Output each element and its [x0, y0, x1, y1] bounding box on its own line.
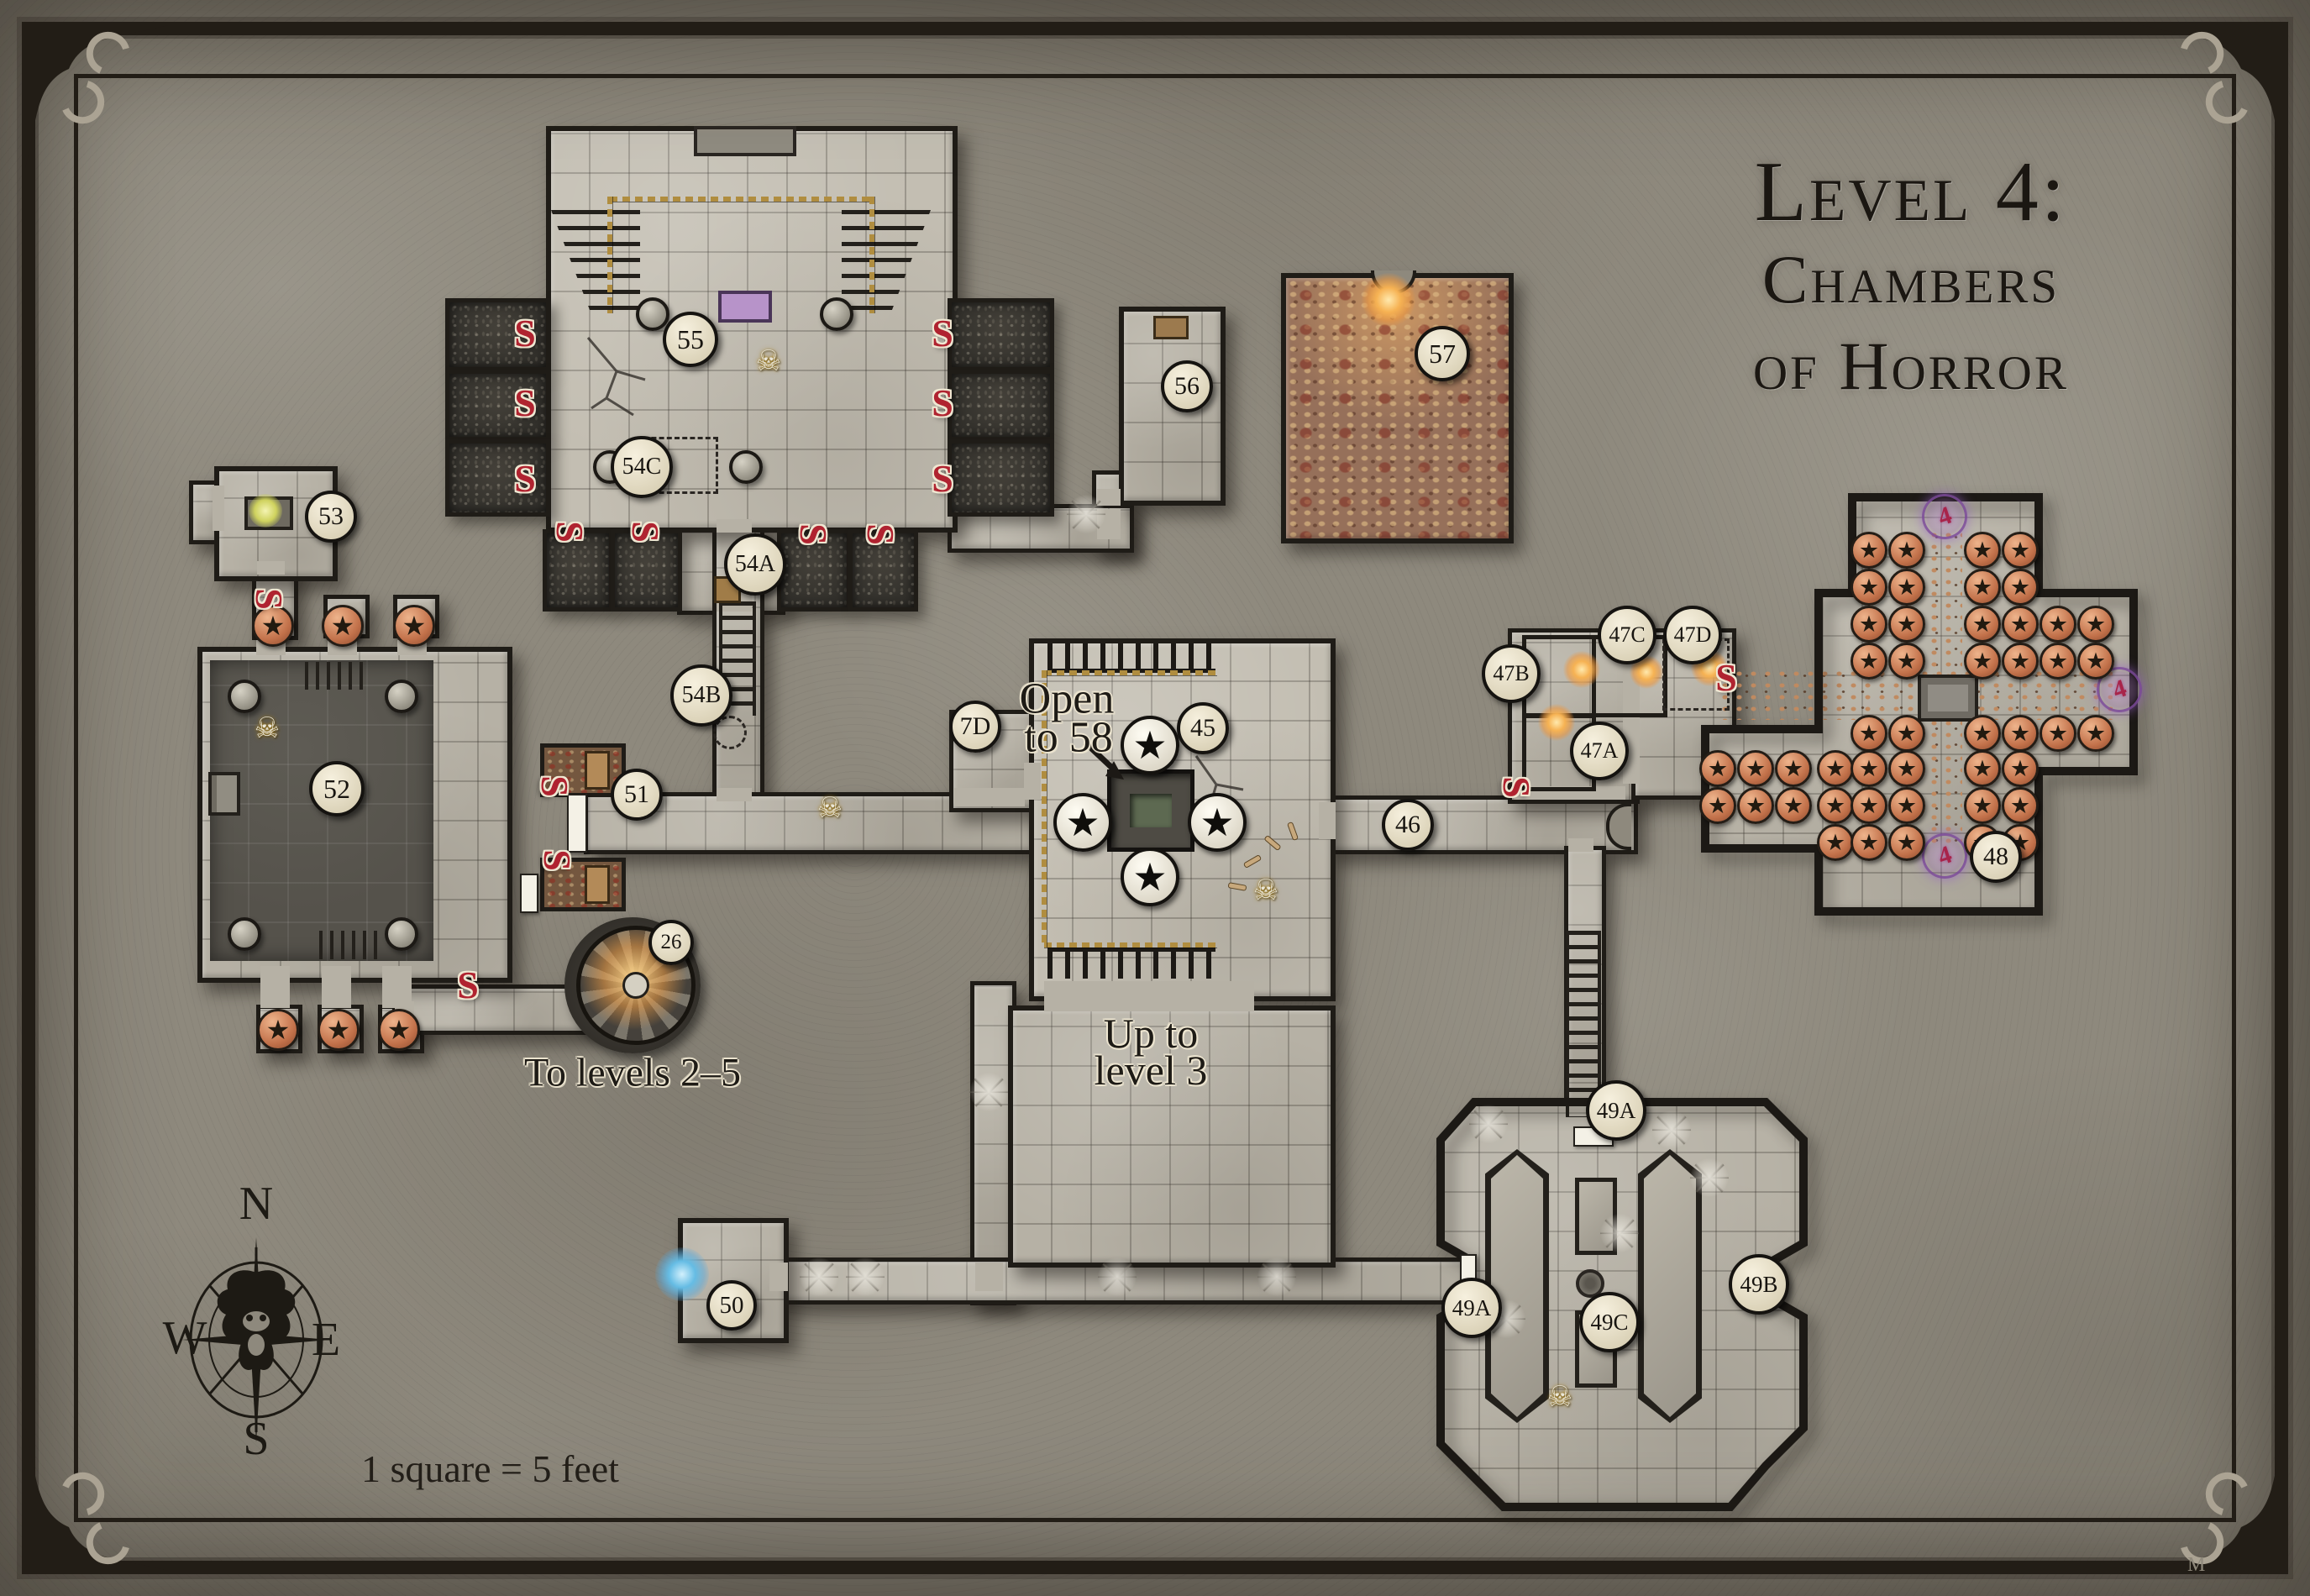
star-icon: ★ [1783, 795, 1803, 817]
room-label: 47B [1482, 644, 1541, 703]
room-label: 52 [309, 761, 365, 816]
star-icon: ★ [1859, 832, 1879, 854]
star-icon: ★ [331, 612, 355, 639]
secret-door-marker: S [514, 459, 536, 498]
star-icon: ★ [1897, 576, 1917, 599]
room-label: 47D [1663, 606, 1722, 664]
star-icon: ★ [1897, 832, 1917, 854]
star-medallion: ★ [1888, 532, 1925, 569]
star-icon: ★ [1972, 795, 1992, 817]
room-label: 45 [1177, 702, 1229, 754]
spider-web-icon [1690, 1158, 1729, 1197]
annotation-up-to-level3b: level 3 [1095, 1046, 1208, 1095]
room-label-text: 49C [1590, 1310, 1628, 1336]
star-medallion: ★ [1851, 643, 1887, 680]
star-medallion: ★ [1964, 569, 2001, 606]
dungeon-map: 5554C54A54B535251267D454647B47C47D47A484… [0, 0, 2310, 1596]
room-label-text: 55 [677, 324, 704, 355]
star-medallion: ★ [1964, 606, 2001, 643]
room-label: 54C [611, 436, 673, 498]
bone-debris [1243, 854, 1263, 869]
torch-flame-icon [1563, 651, 1600, 688]
skull-icon: ☠ [1547, 1380, 1572, 1414]
star-icon: ★ [1972, 576, 1992, 599]
room-label: 49A [1586, 1080, 1646, 1141]
room-label-text: 54A [735, 551, 775, 578]
star-medallion: ★ [1888, 787, 1925, 824]
spider-web-icon [846, 1257, 885, 1296]
skull-icon: ☠ [255, 711, 280, 745]
room-label-text: 49A [1452, 1295, 1492, 1321]
star-medallion: ★ [2002, 532, 2039, 569]
secret-door-marker: S [538, 849, 576, 871]
annotation-to-levels: To levels 2–5 [524, 1050, 741, 1096]
star-icon: ★ [1859, 613, 1879, 636]
star-icon: ★ [1708, 758, 1728, 780]
room-label-text: 51 [624, 780, 649, 809]
room-label-text: 54B [682, 682, 722, 709]
star-medallion: ★ [1851, 532, 1887, 569]
star-medallion: ★ [1888, 715, 1925, 752]
secret-door-marker: S [626, 521, 664, 543]
star-medallion: ★ [252, 605, 294, 647]
secret-door-marker: S [932, 384, 953, 423]
room-label: 54A [724, 533, 786, 596]
room-label-text: 45 [1190, 714, 1215, 743]
glowing-orb-icon [249, 494, 282, 528]
room-label-text: 48 [1983, 843, 2008, 871]
star-icon: ★ [1825, 795, 1845, 817]
star-icon: ★ [1859, 539, 1879, 562]
star-icon: ★ [1825, 758, 1845, 780]
spider-web-icon [800, 1257, 838, 1296]
star-icon: ★ [2010, 758, 2030, 780]
star-medallion: ★ [1888, 643, 1925, 680]
room-label: 51 [611, 769, 663, 821]
star-icon: ★ [1859, 758, 1879, 780]
star-icon: ★ [261, 612, 286, 639]
room-label-text: 49A [1597, 1098, 1636, 1124]
star-medallion: ★ [1817, 787, 1854, 824]
room-label: 57 [1415, 326, 1470, 381]
star-icon: ★ [2048, 650, 2068, 673]
rune-glyph: 4 [2109, 675, 2130, 706]
star-icon: ★ [2010, 576, 2030, 599]
room-label-text: 47C [1609, 622, 1645, 648]
room-label: 46 [1382, 799, 1434, 851]
room-label: 49C [1579, 1292, 1640, 1352]
spider-web-icon [1098, 1257, 1137, 1296]
star-medallion: ★ [322, 605, 364, 647]
room-label-text: 49B [1740, 1272, 1777, 1298]
ward-rune-icon: 4 [1922, 494, 1967, 539]
secret-door-marker: S [932, 314, 953, 353]
secret-door-marker: S [457, 966, 479, 1005]
skull-icon: ☠ [817, 791, 843, 825]
compass-rose: N W E S [143, 1172, 378, 1466]
door [567, 794, 587, 853]
scale-note: 1 square = 5 feet [361, 1446, 619, 1491]
room-label: 26 [648, 920, 694, 965]
star-medallion: ★ [1775, 787, 1812, 824]
star-medallion: ★ [2040, 715, 2076, 752]
star-medallion: ★ [393, 605, 435, 647]
star-icon: ★ [2010, 722, 2030, 745]
secret-door-marker: S [535, 775, 574, 797]
room-label-text: 47B [1493, 661, 1529, 686]
magic-glow-icon [655, 1247, 709, 1301]
star-medallion: ★ [2002, 715, 2039, 752]
spider-web-icon [969, 1073, 1008, 1111]
star-icon: ★ [1972, 539, 1992, 562]
star-icon: ★ [1783, 758, 1803, 780]
room-label: 56 [1161, 360, 1213, 412]
room-label-text: 56 [1174, 372, 1200, 401]
star-icon: ★ [2010, 650, 2030, 673]
star-medallion: ★ [1964, 643, 2001, 680]
star-medallion: ★ [2077, 643, 2114, 680]
secret-door-marker: S [514, 384, 536, 423]
bone-debris [1263, 835, 1281, 852]
star-medallion: ★ [1851, 824, 1887, 861]
star-icon: ★ [2010, 795, 2030, 817]
star-icon: ★ [1200, 803, 1234, 842]
room-label-text: 50 [720, 1292, 744, 1320]
star-medallion: ★ [1737, 787, 1774, 824]
star-medallion: ★ [1851, 750, 1887, 787]
star-icon: ★ [2086, 650, 2106, 673]
star-medallion: ★ [2077, 606, 2114, 643]
ward-rune-icon: 4 [1922, 833, 1967, 879]
star-medallion: ★ [378, 1009, 420, 1051]
title-line-3: of Horror [1659, 323, 2163, 410]
star-icon: ★ [327, 1016, 351, 1043]
secret-door-marker: S [794, 523, 832, 545]
star-medallion: ★ [1888, 569, 1925, 606]
star-icon: ★ [1897, 795, 1917, 817]
room-label: 50 [706, 1280, 757, 1331]
star-icon: ★ [2086, 613, 2106, 636]
star-medallion: ★ [1888, 606, 1925, 643]
room-label: 49A [1441, 1278, 1502, 1338]
pit-star-medallion: ★ [1121, 848, 1179, 906]
star-medallion: ★ [2002, 569, 2039, 606]
star-medallion: ★ [2002, 643, 2039, 680]
star-icon: ★ [266, 1016, 291, 1043]
room-label: 49B [1729, 1254, 1789, 1315]
door [520, 874, 538, 913]
star-medallion: ★ [1851, 715, 1887, 752]
star-medallion: ★ [1699, 787, 1736, 824]
skull-icon: ☠ [756, 344, 781, 378]
bone-debris [1287, 822, 1299, 841]
star-medallion: ★ [2002, 606, 2039, 643]
room-label: 55 [663, 312, 718, 367]
secret-door-marker: S [1715, 659, 1737, 697]
star-medallion: ★ [1888, 750, 1925, 787]
star-medallion: ★ [318, 1009, 360, 1051]
star-icon: ★ [1859, 722, 1879, 745]
star-icon: ★ [1065, 803, 1100, 842]
secret-door-marker: S [1497, 776, 1536, 798]
star-medallion: ★ [1699, 750, 1736, 787]
secret-door-marker: S [550, 521, 589, 543]
star-icon: ★ [1825, 832, 1845, 854]
spider-web-icon [1469, 1105, 1508, 1143]
artist-signature: M [2187, 1554, 2205, 1577]
star-icon: ★ [1859, 650, 1879, 673]
map-title: Level 4: Chambers of Horror [1659, 147, 2163, 409]
secret-door-marker: S [514, 314, 536, 353]
skull-icon: ☠ [1253, 874, 1278, 907]
star-icon: ★ [2048, 613, 2068, 636]
annotation-open-58b: to 58 [1024, 713, 1112, 763]
star-icon: ★ [1708, 795, 1728, 817]
star-icon: ★ [1746, 795, 1766, 817]
star-icon: ★ [1897, 539, 1917, 562]
room-label: 47C [1598, 606, 1656, 664]
star-icon: ★ [1972, 650, 1992, 673]
spider-web-icon [1067, 495, 1105, 533]
star-icon: ★ [1897, 722, 1917, 745]
room-label: 53 [305, 491, 357, 543]
title-line-1: Level 4: [1659, 147, 2163, 237]
star-medallion: ★ [1888, 824, 1925, 861]
star-medallion: ★ [2040, 643, 2076, 680]
room-label-text: 46 [1395, 811, 1420, 839]
secret-door-marker: S [249, 588, 288, 610]
star-medallion: ★ [1737, 750, 1774, 787]
spider-web-icon [1257, 1257, 1296, 1296]
star-icon: ★ [1972, 722, 1992, 745]
title-line-2: Chambers [1659, 237, 2163, 323]
star-icon: ★ [402, 612, 427, 639]
star-icon: ★ [387, 1016, 412, 1043]
star-medallion: ★ [1851, 569, 1887, 606]
star-icon: ★ [1132, 858, 1167, 896]
room-label-text: 57 [1429, 339, 1456, 370]
room-label: 48 [1970, 831, 2022, 883]
room-label-text: 53 [318, 502, 344, 531]
secret-door-marker: S [861, 523, 900, 545]
star-icon: ★ [2048, 722, 2068, 745]
star-medallion: ★ [2077, 715, 2114, 752]
compass-rose-graphic [172, 1222, 340, 1457]
star-medallion: ★ [1964, 787, 2001, 824]
room-label-text: 52 [323, 774, 350, 805]
star-icon: ★ [2086, 722, 2106, 745]
star-medallion: ★ [1964, 715, 2001, 752]
room-label-text: 47D [1674, 622, 1712, 648]
pit-star-medallion: ★ [1053, 793, 1112, 852]
room-label-text: 7D [960, 712, 991, 741]
star-medallion: ★ [2002, 750, 2039, 787]
star-medallion: ★ [1851, 606, 1887, 643]
star-medallion: ★ [1775, 750, 1812, 787]
star-icon: ★ [1746, 758, 1766, 780]
star-medallion: ★ [2040, 606, 2076, 643]
room-label: 54B [670, 664, 732, 727]
rune-glyph: 4 [1935, 841, 1956, 872]
star-icon: ★ [2010, 613, 2030, 636]
bone-debris [1228, 882, 1247, 891]
star-icon: ★ [1897, 758, 1917, 780]
star-icon: ★ [1859, 795, 1879, 817]
star-icon: ★ [1859, 576, 1879, 599]
rune-glyph: 4 [1935, 501, 1956, 533]
pit-star-medallion: ★ [1188, 793, 1247, 852]
star-medallion: ★ [257, 1009, 299, 1051]
room-label: 7D [949, 701, 1001, 753]
room-label-text: 47A [1581, 738, 1619, 764]
star-medallion: ★ [1817, 750, 1854, 787]
star-icon: ★ [1897, 613, 1917, 636]
star-medallion: ★ [1817, 824, 1854, 861]
star-icon: ★ [1972, 758, 1992, 780]
star-medallion: ★ [1851, 787, 1887, 824]
room-label-text: 26 [661, 931, 682, 954]
spider-web-icon [1652, 1110, 1691, 1149]
star-medallion: ★ [2002, 787, 2039, 824]
star-icon: ★ [2010, 539, 2030, 562]
torch-flame-icon [1538, 704, 1575, 741]
secret-door-marker: S [932, 459, 953, 498]
star-medallion: ★ [1964, 532, 2001, 569]
spider-web-icon [1600, 1214, 1639, 1252]
room-label-text: 54C [622, 454, 662, 480]
star-icon: ★ [1897, 650, 1917, 673]
star-medallion: ★ [1964, 750, 2001, 787]
torch-flame-icon [1362, 273, 1415, 327]
star-icon: ★ [1972, 613, 1992, 636]
room-label: 47A [1570, 722, 1629, 780]
